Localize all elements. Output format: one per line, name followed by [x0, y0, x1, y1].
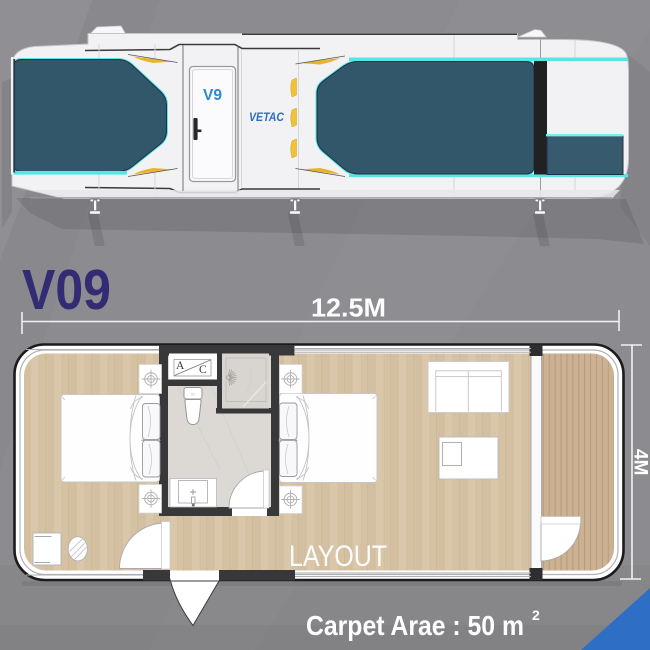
svg-text:12.5M: 12.5M — [311, 293, 386, 323]
svg-text:VETAC: VETAC — [249, 112, 285, 124]
svg-text:4M: 4M — [630, 449, 650, 475]
svg-text:A: A — [176, 360, 185, 372]
svg-text:Carpet Arae : 50 m: Carpet Arae : 50 m — [306, 610, 524, 641]
svg-text:LAYOUT: LAYOUT — [289, 540, 387, 573]
svg-text:V9: V9 — [203, 87, 222, 104]
svg-text:2: 2 — [532, 607, 540, 623]
svg-text:V09: V09 — [22, 258, 111, 322]
svg-text:C: C — [199, 364, 207, 376]
